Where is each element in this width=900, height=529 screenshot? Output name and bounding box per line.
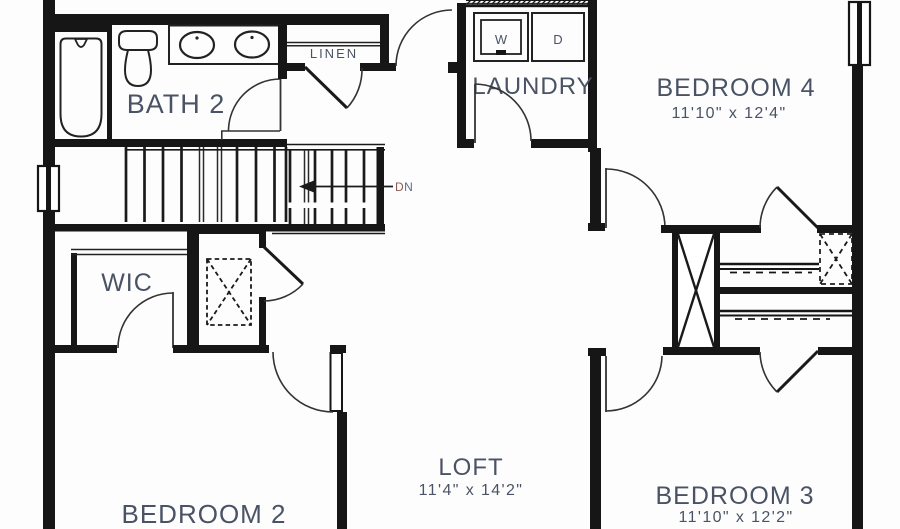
- svg-text:LOFT: LOFT: [438, 454, 503, 481]
- svg-text:BEDROOM 2: BEDROOM 2: [121, 499, 286, 529]
- svg-text:11'10" x 12'4": 11'10" x 12'4": [671, 105, 786, 122]
- svg-text:11'10" x 12'2": 11'10" x 12'2": [678, 509, 793, 526]
- svg-text:DN: DN: [395, 180, 413, 194]
- svg-text:BATH 2: BATH 2: [127, 89, 226, 119]
- svg-text:BEDROOM 4: BEDROOM 4: [656, 74, 815, 102]
- svg-text:WIC: WIC: [101, 269, 153, 297]
- svg-text:11'4" x 14'2": 11'4" x 14'2": [419, 482, 524, 499]
- svg-text:BEDROOM 3: BEDROOM 3: [655, 482, 814, 510]
- svg-text:LINEN: LINEN: [310, 46, 358, 61]
- svg-text:D: D: [553, 32, 562, 47]
- svg-text:W: W: [495, 32, 508, 47]
